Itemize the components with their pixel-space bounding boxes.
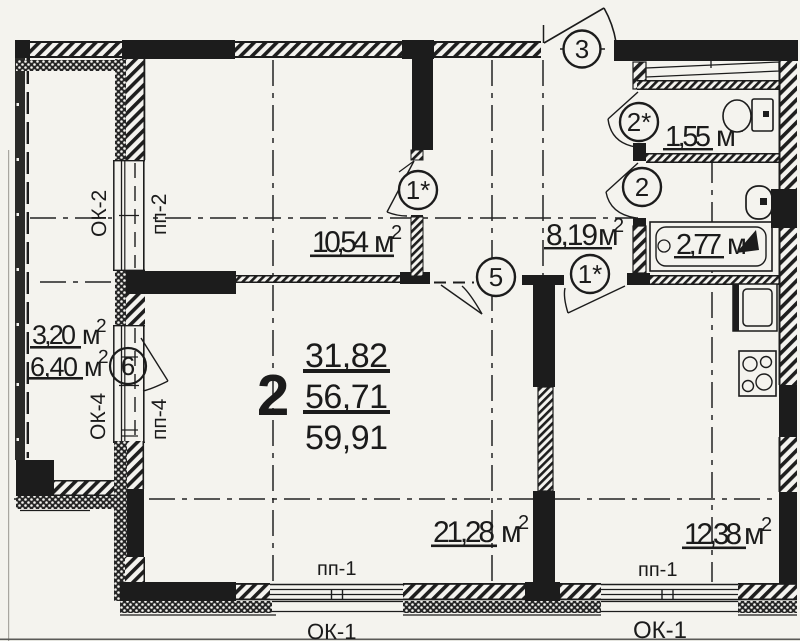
svg-text:59,91: 59,91	[305, 419, 388, 457]
svg-text:5: 5	[489, 262, 503, 292]
svg-text:ОК-1: ОК-1	[307, 619, 357, 641]
svg-text:1*: 1*	[406, 175, 431, 205]
svg-text:2: 2	[257, 363, 289, 428]
svg-text:12,38: 12,38	[684, 518, 742, 551]
svg-text:2: 2	[613, 215, 624, 237]
svg-text:10,54: 10,54	[312, 226, 369, 259]
svg-text:1*: 1*	[578, 259, 603, 289]
svg-text:пп-1: пп-1	[638, 559, 677, 581]
svg-text:ОК-2: ОК-2	[88, 190, 111, 237]
svg-text:2: 2	[761, 514, 772, 536]
svg-text:2*: 2*	[627, 107, 652, 137]
svg-text:ОК-4: ОК-4	[87, 392, 110, 440]
svg-text:2: 2	[98, 347, 109, 368]
svg-text:21,28: 21,28	[433, 516, 495, 549]
svg-text:ОК-1: ОК-1	[633, 617, 687, 641]
svg-text:пп-1: пп-1	[317, 558, 356, 580]
svg-text:2: 2	[96, 316, 107, 337]
svg-text:2: 2	[635, 172, 649, 202]
svg-text:3,20: 3,20	[32, 320, 76, 350]
svg-text:2: 2	[391, 222, 402, 244]
svg-text:6: 6	[121, 351, 135, 381]
svg-text:3: 3	[575, 34, 589, 64]
svg-text:пп-4: пп-4	[148, 398, 171, 440]
svg-text:2: 2	[518, 512, 529, 534]
svg-text:пп-2: пп-2	[148, 194, 171, 235]
